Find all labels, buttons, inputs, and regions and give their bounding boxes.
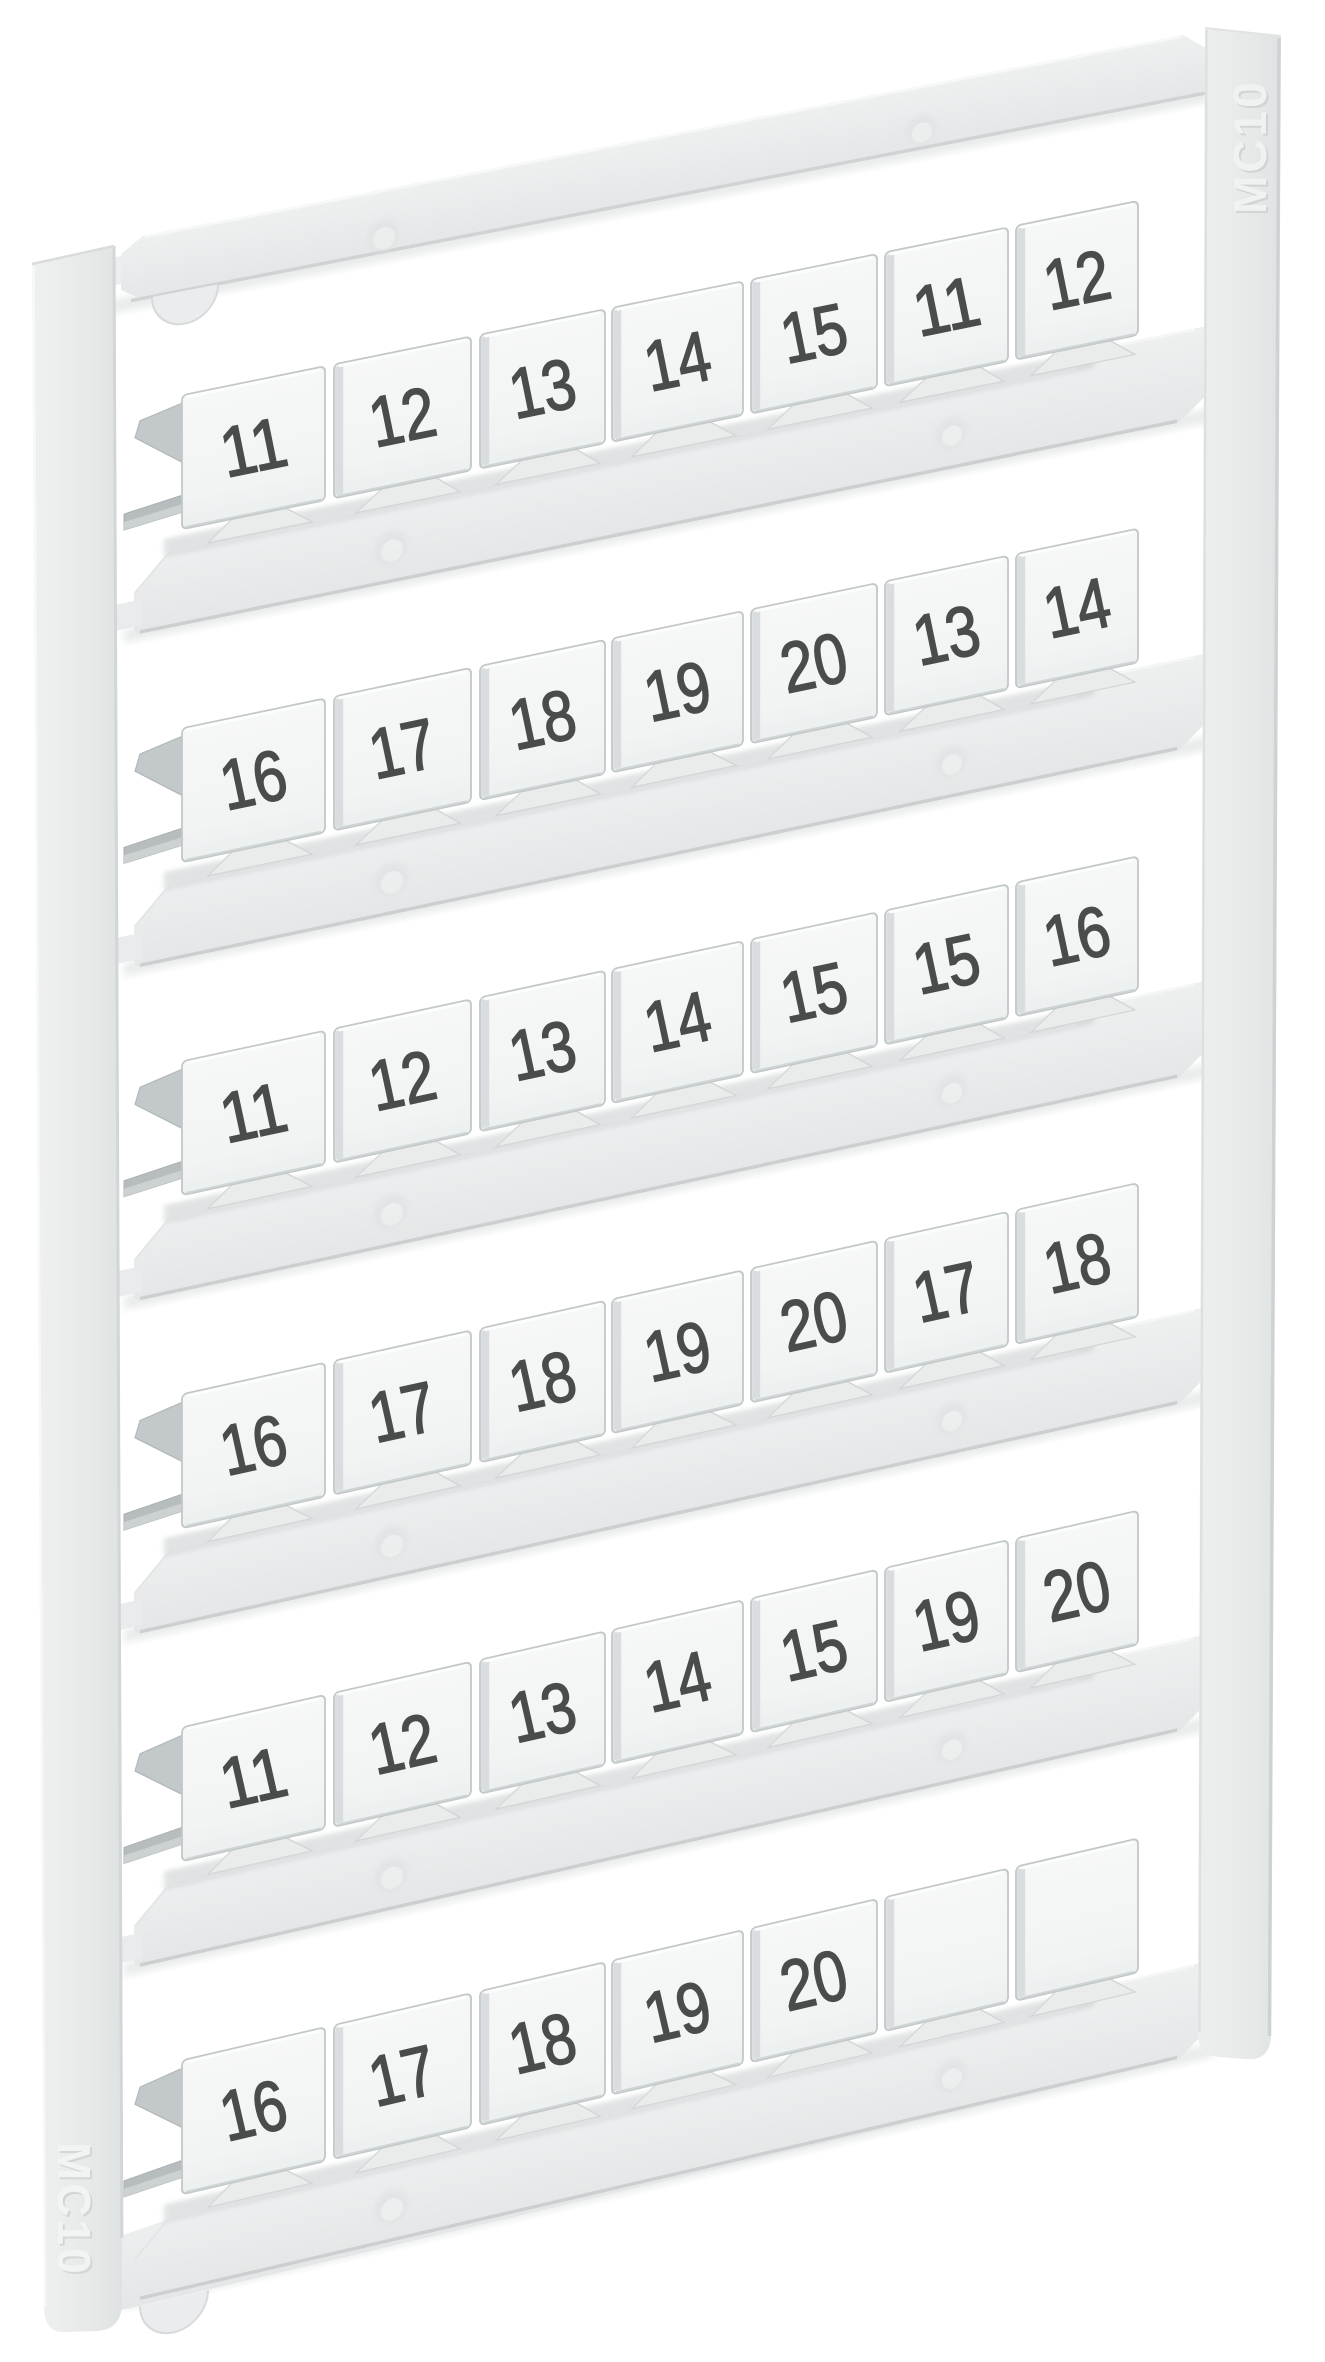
svg-text:MC10: MC10 (48, 2142, 100, 2277)
svg-text:MC10: MC10 (1224, 79, 1276, 214)
